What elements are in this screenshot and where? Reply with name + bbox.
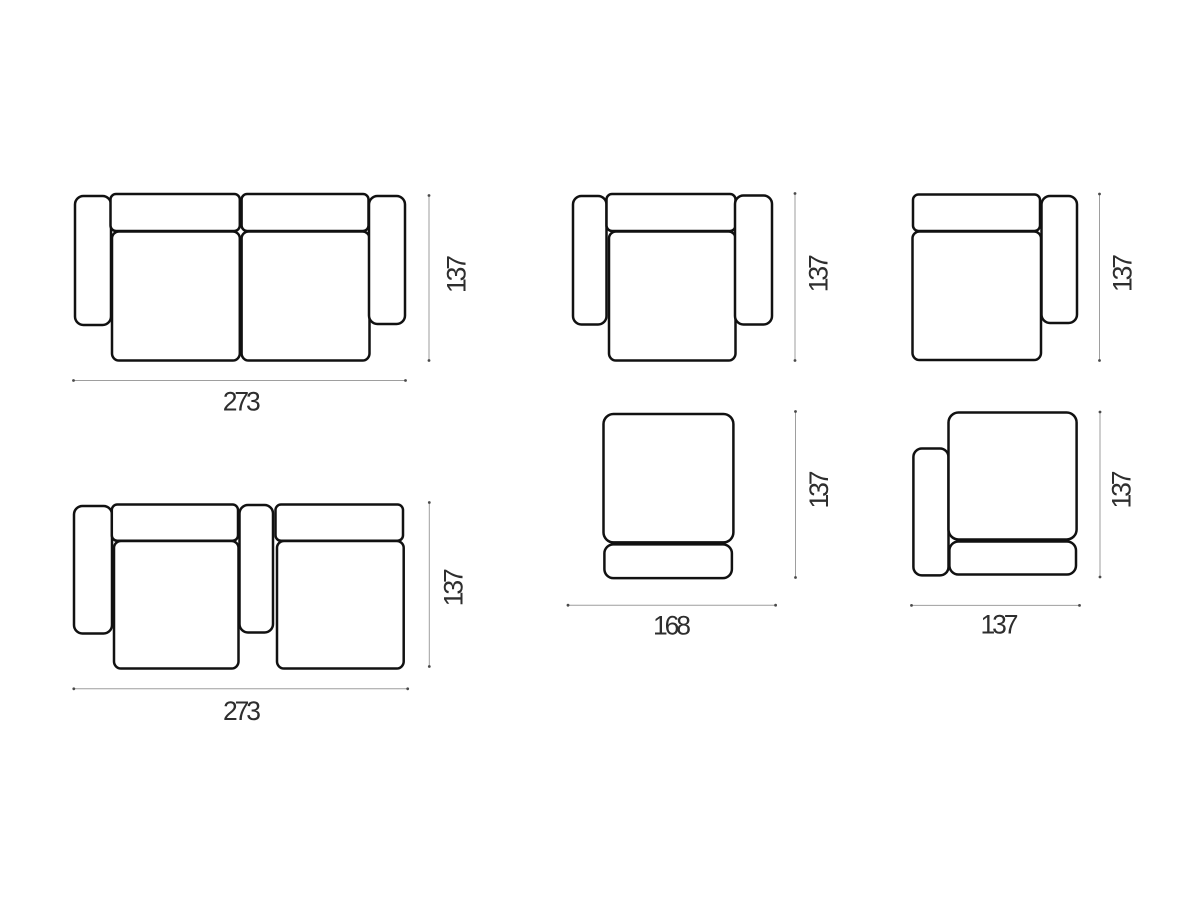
svg-text:137: 137 [1107,471,1137,509]
svg-text:273: 273 [223,696,261,726]
svg-text:137: 137 [981,610,1019,640]
svg-text:137: 137 [1108,254,1138,292]
svg-text:137: 137 [804,254,834,292]
svg-text:137: 137 [804,471,834,509]
svg-text:137: 137 [439,568,469,606]
svg-text:168: 168 [653,611,691,641]
svg-text:273: 273 [223,387,261,417]
svg-text:137: 137 [441,255,471,293]
